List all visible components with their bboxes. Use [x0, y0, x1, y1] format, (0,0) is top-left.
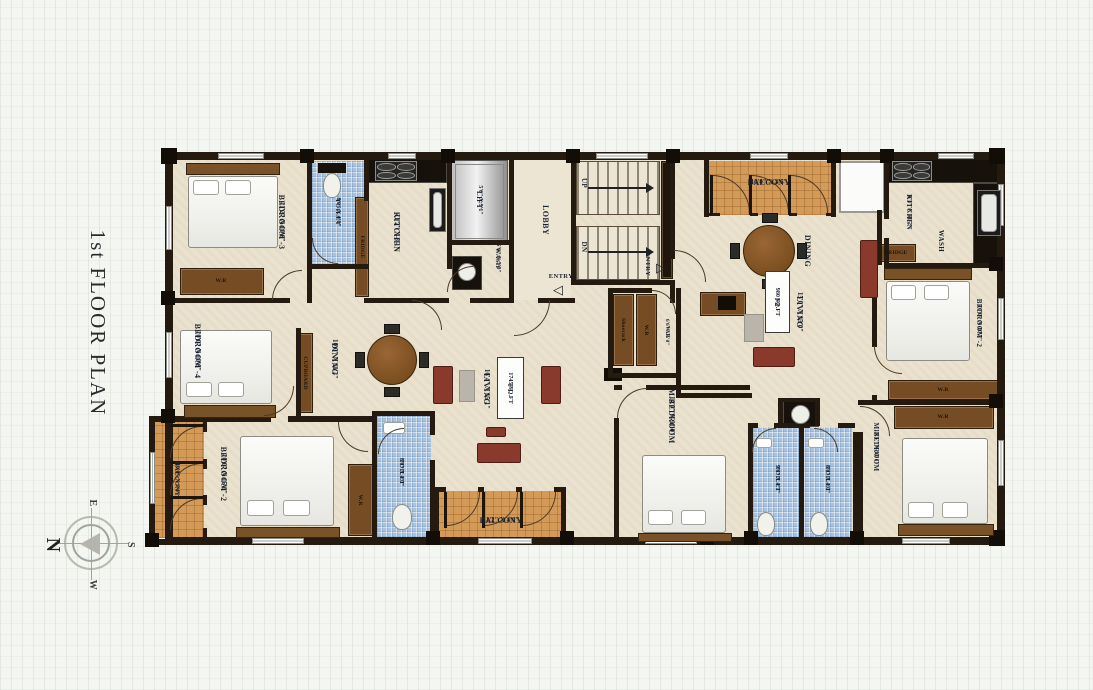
washbasin-icon [791, 405, 810, 424]
bed-headboard [186, 163, 280, 175]
rug [459, 370, 475, 402]
wall [614, 418, 619, 537]
pillow [218, 382, 244, 397]
unit-f2-area: 980 SQ.FT [773, 288, 780, 317]
chair-icon [730, 243, 740, 259]
pillow [283, 500, 310, 516]
column [989, 257, 1003, 271]
wall [614, 385, 622, 390]
pillow [942, 502, 968, 518]
wall [372, 411, 377, 537]
stair-arrow-down [588, 251, 646, 253]
pillow [193, 180, 219, 195]
column [850, 531, 864, 545]
wall [884, 159, 889, 219]
stair-arrow-up [588, 187, 646, 189]
window [938, 153, 974, 159]
wall [778, 398, 820, 402]
chair-icon [384, 387, 400, 397]
window [166, 206, 172, 250]
window [902, 538, 950, 544]
toilet-wc-icon [323, 173, 341, 198]
window [998, 298, 1004, 340]
pillow [186, 382, 212, 397]
wall [447, 159, 452, 269]
wall [296, 328, 301, 420]
wall [307, 264, 369, 269]
wall [364, 298, 449, 303]
compass-n: N [41, 538, 65, 553]
column [161, 291, 175, 305]
pillow [908, 502, 934, 518]
chair-icon [762, 213, 778, 223]
door-leaf [710, 175, 713, 215]
sink-icon [977, 190, 1001, 236]
dining-table-f1 [367, 335, 417, 385]
compass-e: E [86, 499, 98, 506]
chair-icon [355, 352, 365, 368]
window [478, 538, 532, 544]
stove-icon [375, 161, 417, 181]
door-leaf [170, 424, 204, 427]
toilet-wc-icon [757, 512, 775, 536]
wall [608, 373, 681, 378]
wc-tank [318, 163, 346, 173]
column [666, 149, 680, 163]
wall [447, 240, 511, 245]
wall [676, 288, 681, 398]
wall [815, 398, 820, 426]
coffee-table [486, 427, 506, 437]
column [441, 149, 455, 163]
column [145, 533, 159, 547]
wall [307, 159, 312, 269]
column [566, 149, 580, 163]
wall [670, 159, 675, 259]
wall [704, 159, 709, 217]
wall [608, 288, 613, 378]
window [388, 153, 416, 159]
pillow [225, 180, 251, 195]
column [161, 409, 175, 423]
sofa [477, 443, 521, 463]
stove-icon [892, 161, 932, 181]
window [252, 538, 304, 544]
pillow [247, 500, 274, 516]
window [218, 153, 264, 159]
bed-bench [236, 527, 340, 538]
window [150, 452, 155, 504]
unit-f1-area: 1745 SQ.FT [506, 372, 513, 404]
wall [853, 432, 863, 537]
wall [571, 159, 576, 285]
pillow [681, 510, 706, 525]
wall [364, 159, 369, 201]
wall [509, 159, 514, 303]
sofa [860, 240, 878, 298]
sink-icon [429, 188, 446, 232]
wall [372, 411, 435, 416]
wall [799, 423, 804, 538]
column [989, 148, 1005, 164]
column [560, 531, 574, 545]
wall [203, 528, 207, 538]
column [989, 394, 1003, 408]
column [744, 531, 758, 545]
decor-item [718, 296, 736, 310]
toilet-wc-icon [810, 512, 828, 536]
dining-table-f2 [743, 225, 795, 277]
compass-w: W [86, 580, 98, 590]
wall [307, 269, 312, 303]
window [998, 440, 1004, 486]
column [827, 149, 841, 163]
stair-arrowhead-icon [646, 183, 654, 193]
wall [748, 423, 753, 538]
entry-arrow-icon: ◁ [553, 282, 563, 298]
door-leaf [444, 492, 447, 528]
bed-bench [898, 524, 994, 536]
wall [165, 152, 1005, 160]
page-title-text: 1st FLOOR PLAN [84, 230, 109, 417]
wall [680, 393, 752, 398]
sofa [433, 366, 453, 404]
floor-plan-canvas: 1st FLOOR PLAN N E S W [0, 0, 1093, 690]
chair-icon [419, 352, 429, 368]
chair-icon [384, 324, 400, 334]
column [300, 149, 314, 163]
column [161, 148, 177, 164]
window [596, 153, 648, 159]
pillow [924, 285, 949, 300]
bed-bench [184, 405, 276, 418]
wall [858, 400, 1005, 405]
sofa [541, 366, 561, 404]
window [166, 332, 172, 378]
column [426, 531, 440, 545]
wall [470, 298, 511, 303]
entry-arrow-icon: ▷ [656, 260, 666, 276]
compass-s: S [124, 542, 136, 548]
wall [826, 213, 836, 216]
compass-needle-icon [80, 533, 100, 555]
pillow [891, 285, 916, 300]
sofa [753, 347, 795, 367]
bed-headboard [884, 268, 972, 280]
wall [831, 159, 836, 217]
window [750, 153, 788, 159]
rug [744, 314, 764, 342]
pillow [648, 510, 673, 525]
wall [838, 423, 855, 428]
bed-bench [638, 533, 732, 542]
wall [778, 398, 783, 426]
wall [646, 385, 750, 390]
wall [571, 280, 675, 285]
wall [608, 288, 652, 293]
toilet-wc-icon [392, 504, 412, 530]
utility-box [839, 161, 885, 213]
